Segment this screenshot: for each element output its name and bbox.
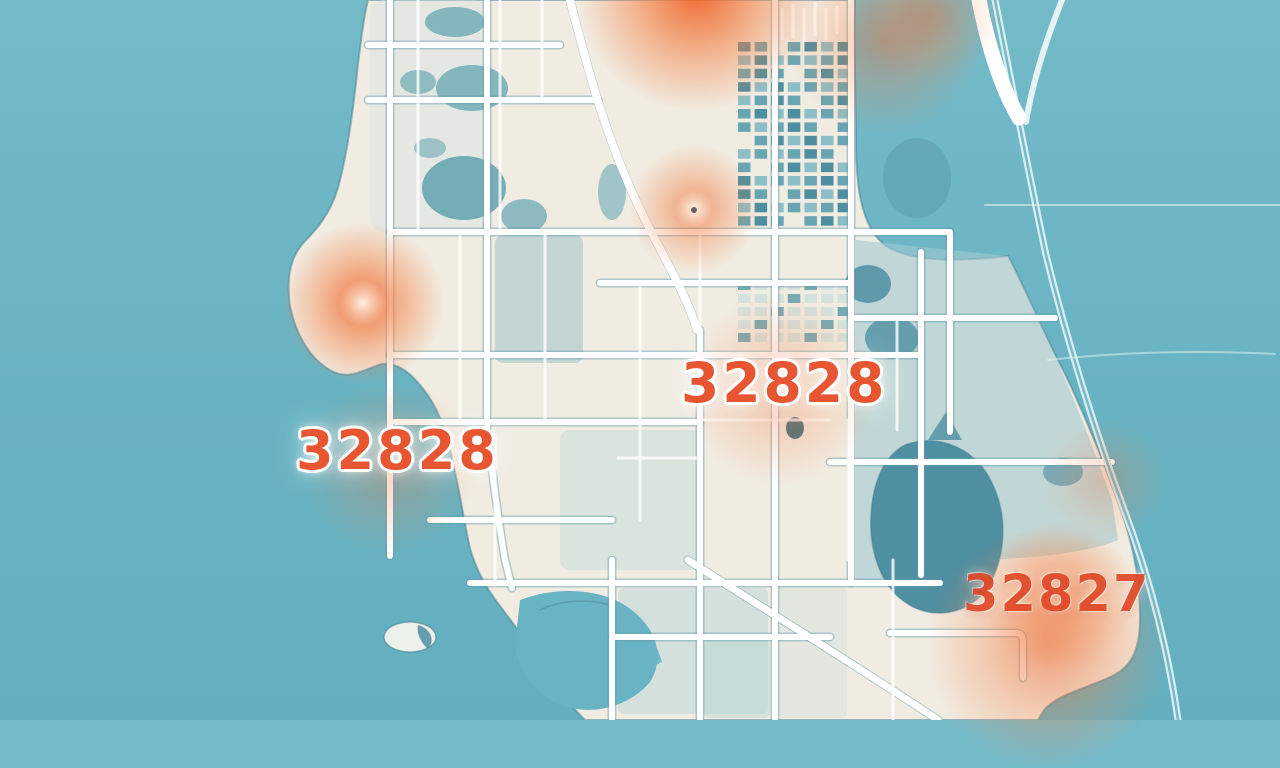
map-canvas[interactable]: 32828 32828 32827 <box>0 0 1280 720</box>
small-island <box>384 622 436 652</box>
highway-ramp <box>1026 0 1062 122</box>
zip-label-southeast: 32827 <box>963 569 1150 620</box>
downtown-grid <box>738 42 850 342</box>
zip-label-west: 32828 <box>296 424 499 478</box>
water-road-faint <box>1048 352 1275 360</box>
zip-label-center: 32828 <box>681 356 887 411</box>
